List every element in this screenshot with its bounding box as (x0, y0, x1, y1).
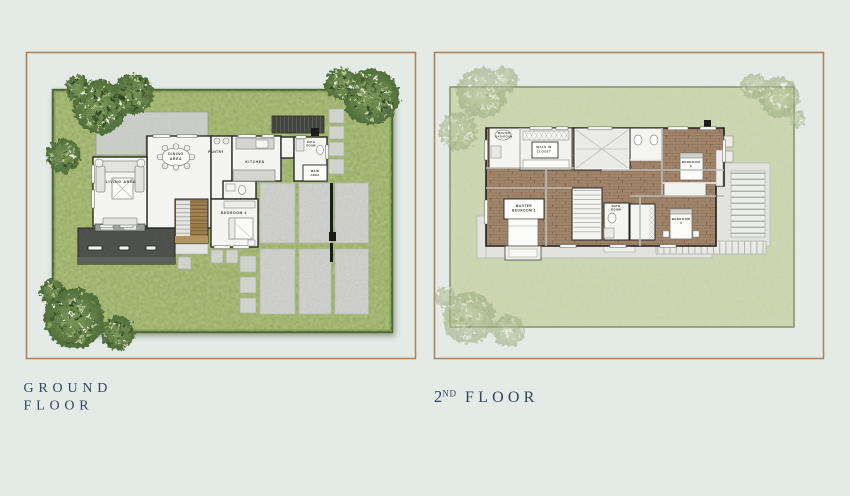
svg-text:AREA: AREA (310, 173, 319, 177)
svg-text:FLOOR: FLOOR (24, 399, 94, 414)
svg-text:BEDROOM 1: BEDROOM 1 (512, 209, 536, 213)
svg-text:3: 3 (680, 221, 682, 225)
svg-text:WALK IN: WALK IN (536, 145, 551, 149)
svg-text:ROOM: ROOM (306, 143, 315, 147)
svg-text:BATH: BATH (307, 140, 315, 144)
svg-text:AREA: AREA (170, 157, 182, 161)
svg-text:CLOSET: CLOSET (537, 149, 552, 153)
svg-text:PANTRY: PANTRY (208, 150, 224, 154)
svg-text:BATHROOM: BATHROOM (496, 135, 513, 138)
svg-text:LIVING AREA: LIVING AREA (106, 180, 137, 184)
svg-text:MASTER: MASTER (516, 204, 533, 208)
svg-text:ROOM: ROOM (611, 208, 621, 212)
svg-text:BEDROOM 4: BEDROOM 4 (221, 211, 247, 215)
svg-text:KITCHEN: KITCHEN (245, 160, 264, 164)
svg-text:GROUND: GROUND (24, 381, 113, 396)
svg-text:DINING: DINING (168, 152, 183, 156)
svg-text:2: 2 (690, 164, 692, 168)
